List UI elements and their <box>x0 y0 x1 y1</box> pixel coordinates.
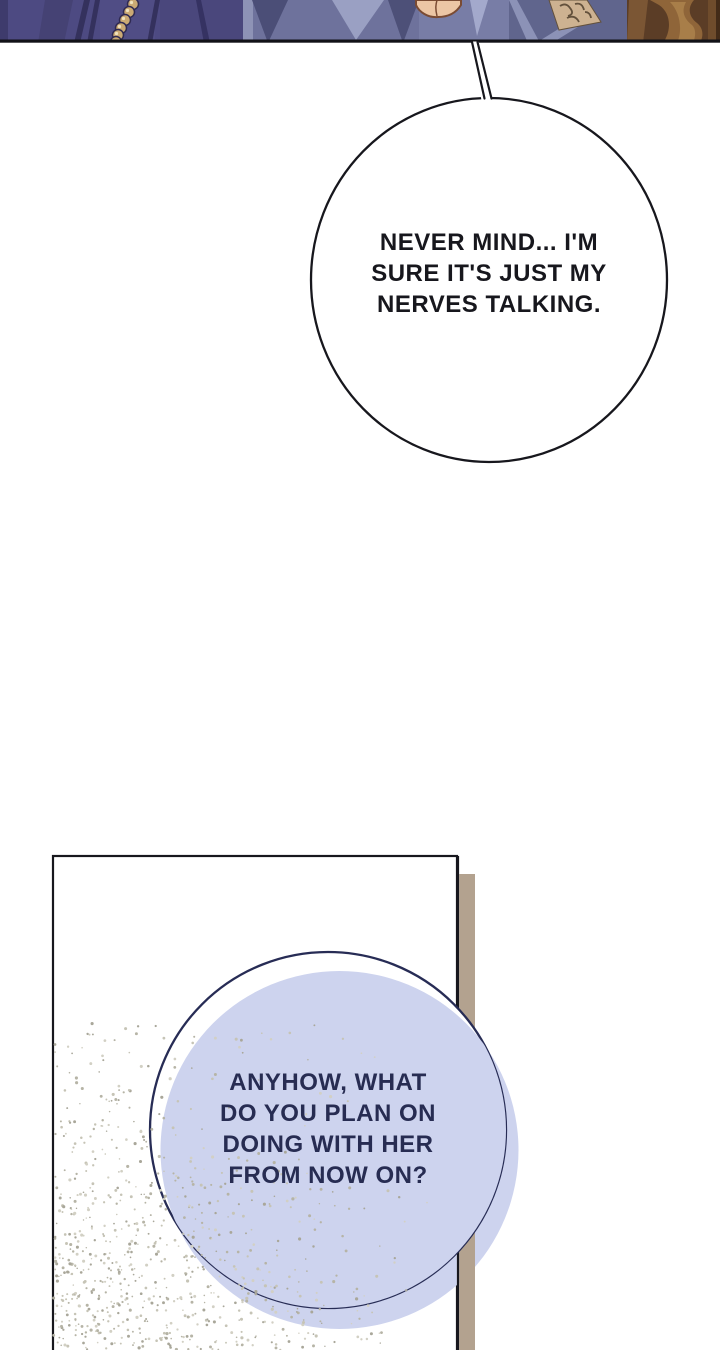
top-panel-border <box>0 40 720 43</box>
webtoon-page: NEVER MIND... I'M SURE IT'S JUST MY NERV… <box>0 0 720 1350</box>
robe-mid-sliver <box>243 0 253 43</box>
robe-left-edge <box>0 0 8 43</box>
bubble1-line: SURE IT'S JUST MY <box>309 258 669 289</box>
bubble1-line: NEVER MIND... I'M <box>309 227 669 258</box>
bubble2-line: FROM NOW ON? <box>158 1160 498 1191</box>
speech-bubble-2-text: ANYHOW, WHAT DO YOU PLAN ON DOING WITH H… <box>158 1067 498 1191</box>
wood-right-edge <box>716 0 720 43</box>
speech-bubble-1-text: NEVER MIND... I'M SURE IT'S JUST MY NERV… <box>309 227 669 320</box>
bubble1-line: NERVES TALKING. <box>309 289 669 320</box>
bubble2-line: DO YOU PLAN ON <box>158 1098 498 1129</box>
bubble2-line: DOING WITH HER <box>158 1129 498 1160</box>
bubble2-line: ANYHOW, WHAT <box>158 1067 498 1098</box>
